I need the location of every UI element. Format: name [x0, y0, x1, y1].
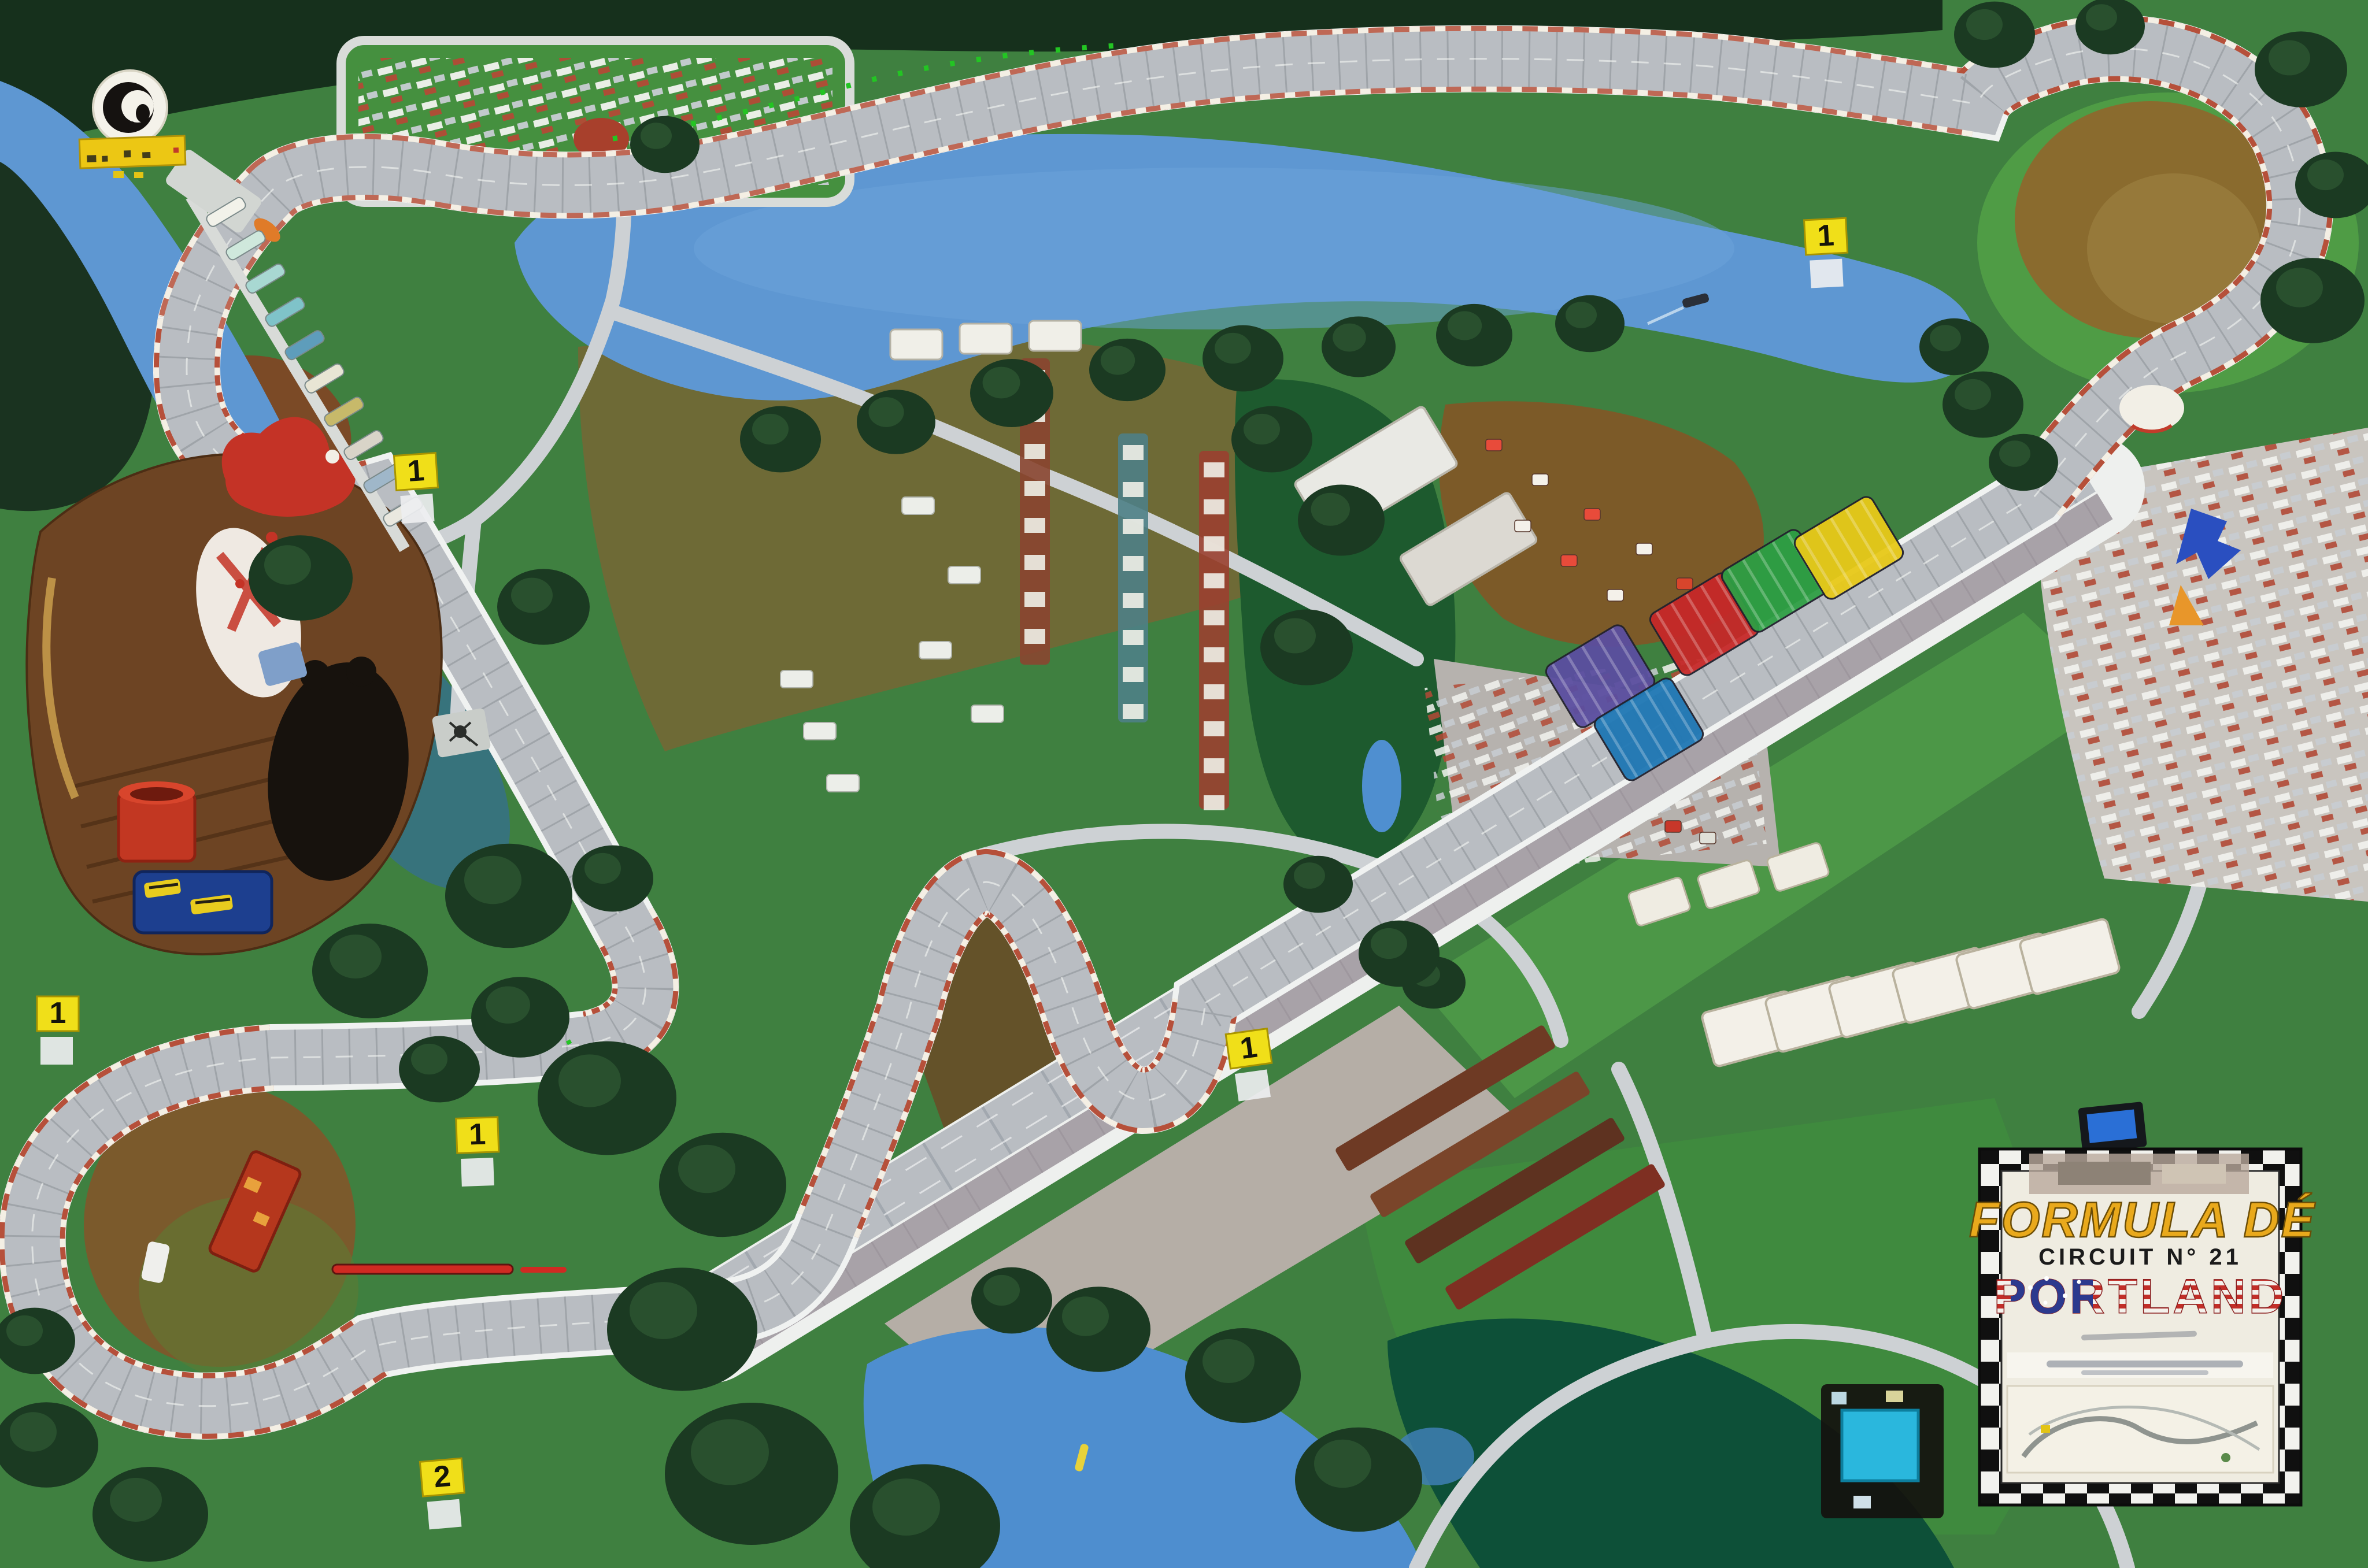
logo-box: FORMULA DÉ CIRCUIT N° 21 PORTLAND PORTLA… — [1969, 1149, 2316, 1505]
corner-speed-sign: 1 — [37, 996, 79, 1065]
corner-exit-marker — [1810, 259, 1843, 288]
corner-sign-number: 1 — [1816, 218, 1835, 253]
corner-exit-marker — [1235, 1069, 1271, 1101]
corner-exit-marker — [427, 1499, 461, 1530]
fair-tent — [1700, 832, 1716, 844]
fair-tent — [1584, 509, 1600, 520]
corner-sign-number: 2 — [432, 1459, 452, 1494]
white-van — [827, 774, 859, 792]
pool-float-ride — [134, 872, 272, 933]
paddock-tent — [890, 329, 942, 359]
paddock-tent — [1029, 321, 1081, 351]
white-van — [804, 722, 836, 740]
white-van — [948, 566, 980, 584]
round-tent — [2119, 385, 2184, 431]
fair-tent — [1561, 555, 1577, 566]
fair-tent — [1636, 543, 1652, 555]
fair-tent — [1665, 821, 1681, 832]
logo-title: FORMULA DÉ — [1969, 1192, 2316, 1248]
formula-de-circuit-board: 111112 FORMULA DÉ CIRCUIT N° 21 PORTLAND… — [0, 0, 2368, 1568]
red-bucket — [119, 781, 195, 861]
corner-sign-number: 1 — [468, 1118, 486, 1152]
corner-exit-marker — [461, 1158, 494, 1187]
paddock-tent — [960, 324, 1012, 354]
fair-tent — [1486, 439, 1502, 451]
white-van — [971, 705, 1004, 722]
fair-tent — [1677, 578, 1693, 590]
fair-tent — [1532, 474, 1548, 485]
white-van — [780, 670, 813, 688]
corner-exit-marker — [40, 1037, 73, 1065]
pool-facility — [1821, 1384, 1944, 1518]
corner-sign-number: 1 — [50, 996, 66, 1030]
badge-banner — [79, 136, 186, 168]
logo-circuit-number: CIRCUIT N° 21 — [2038, 1244, 2242, 1270]
circuit-map: 111112 FORMULA DÉ CIRCUIT N° 21 PORTLAND… — [0, 0, 2368, 1568]
corner-sign-number: 1 — [406, 454, 425, 488]
white-van — [919, 642, 952, 659]
fair-tent — [1607, 590, 1623, 601]
white-van — [902, 497, 934, 514]
fair-tent — [1515, 520, 1531, 532]
mini-track-map — [2007, 1386, 2273, 1473]
corner-speed-sign: 1 — [456, 1117, 500, 1187]
corner-exit-marker — [400, 494, 434, 524]
corner-speed-sign: 1 — [1804, 218, 1849, 288]
